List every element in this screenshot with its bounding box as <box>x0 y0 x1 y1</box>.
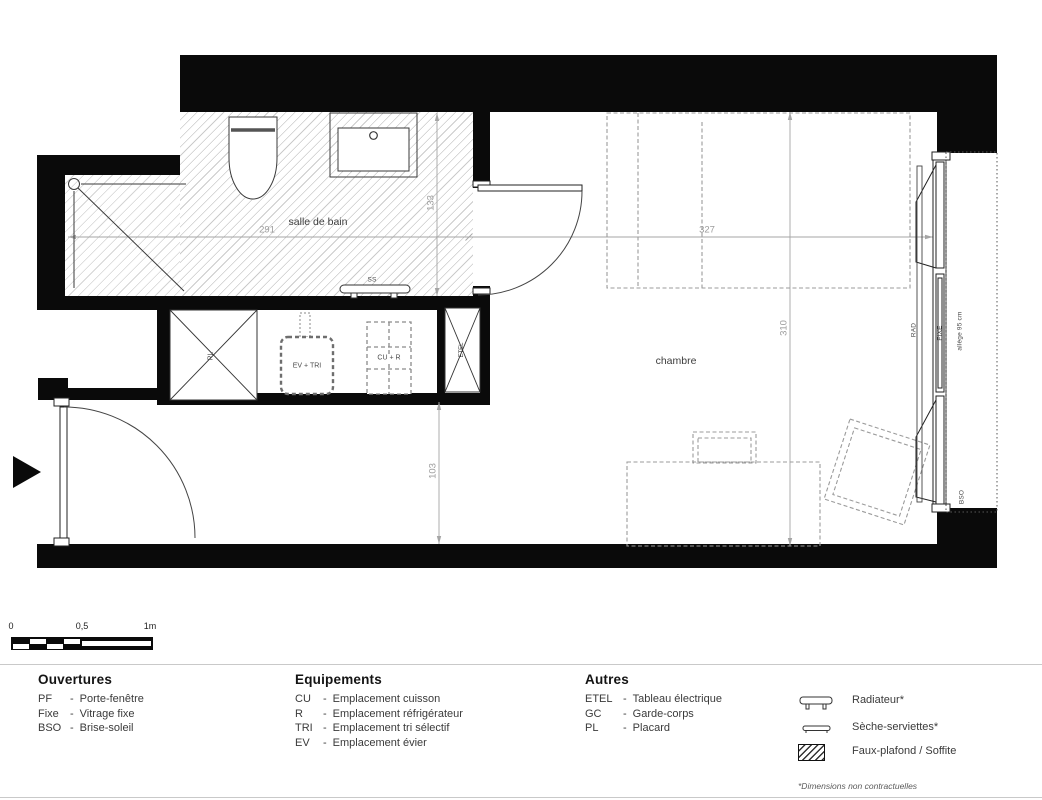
bed-outline <box>607 113 910 288</box>
legend-label: Vitrage fixe <box>80 709 135 721</box>
legend-separator: - <box>321 694 333 706</box>
bso-plan-label: BSO <box>959 490 966 504</box>
scale-one: 1m <box>144 621 157 631</box>
dim-hall-depth: 103 <box>428 463 439 479</box>
legend-item: EV - Emplacement évier <box>295 738 463 750</box>
legend-item: PL - Placard <box>585 723 722 735</box>
legend-item: TRI - Emplacement tri sélectif <box>295 723 463 735</box>
window-band <box>916 152 950 512</box>
dim-room-width: 327 <box>699 225 715 236</box>
legend-equipment-list: CU - Emplacement cuisson R - Emplacement… <box>295 694 463 753</box>
dim-bath-width: 291 <box>259 225 275 236</box>
legend-abbr: BSO <box>38 723 68 735</box>
legend-item: BSO - Brise-soleil <box>38 723 144 735</box>
fixed-glazing-label: FIXE <box>937 325 944 340</box>
legend-others-list: ETEL - Tableau électrique GC - Garde-cor… <box>585 694 722 738</box>
legend-abbr: CU <box>295 694 321 706</box>
bedroom-label: chambre <box>656 355 697 367</box>
sill-height-label: allège 95 cm <box>957 311 964 350</box>
legend-towel-label: Sèche-serviettes* <box>852 721 938 733</box>
shower <box>69 179 187 292</box>
legend-equipment-title: Equipements <box>295 672 382 687</box>
legend-item: ETEL - Tableau électrique <box>585 694 722 706</box>
legend-label: Placard <box>633 723 670 735</box>
scale-zero: 0 <box>8 621 13 631</box>
legend-item: CU - Emplacement cuisson <box>295 694 463 706</box>
legend-radiator-label: Radiateur* <box>852 694 904 706</box>
legend-label: Garde-corps <box>633 709 694 721</box>
electrical-label: ETEL <box>459 342 465 357</box>
cooking-zone-label: CU + R <box>375 355 402 362</box>
sink <box>330 113 417 177</box>
floor-plan-sheet: salle de bain chambre SS PL EV + TRI CU … <box>0 0 1042 800</box>
toilet <box>229 117 277 199</box>
legend-label: Brise-soleil <box>80 723 134 735</box>
legend-separator: - <box>621 709 633 721</box>
legend-soffit-label: Faux-plafond / Soffite <box>852 745 956 757</box>
dim-room-depth: 310 <box>779 320 790 336</box>
legend-label: Emplacement évier <box>333 738 427 750</box>
legend-item: R - Emplacement réfrigérateur <box>295 709 463 721</box>
legend-abbr: TRI <box>295 723 321 735</box>
legend-separator: - <box>321 738 333 750</box>
sink-zone-label: EV + TRI <box>291 363 323 370</box>
legend-separator: - <box>621 723 633 735</box>
towel-radiator <box>340 285 410 298</box>
bathroom-door <box>473 181 582 295</box>
radiator-plan-label: RAD <box>911 323 918 337</box>
legend-openings-list: PF - Porte-fenêtre Fixe - Vitrage fixe B… <box>38 694 144 738</box>
legend-separator: - <box>68 694 80 706</box>
legend-footnote: *Dimensions non contractuelles <box>798 781 917 791</box>
legend-label: Porte-fenêtre <box>80 694 144 706</box>
legend-divider <box>0 664 1042 665</box>
legend-separator: - <box>621 694 633 706</box>
legend-others-title: Autres <box>585 672 629 687</box>
legend-abbr: Fixe <box>38 709 68 721</box>
legend-abbr: ETEL <box>585 694 621 706</box>
legend-abbr: GC <box>585 709 621 721</box>
legend-abbr: PF <box>38 694 68 706</box>
desk-outline <box>627 432 820 546</box>
closet-label: PL <box>208 352 215 361</box>
legend-item: GC - Garde-corps <box>585 709 722 721</box>
towel-rail-label: SS <box>367 277 376 284</box>
legend-label: Emplacement cuisson <box>333 694 441 706</box>
legend-item: PF - Porte-fenêtre <box>38 694 144 706</box>
legend-abbr: EV <box>295 738 321 750</box>
legend-abbr: PL <box>585 723 621 735</box>
scale-half: 0,5 <box>76 621 89 631</box>
legend-label: Tableau électrique <box>633 694 722 706</box>
sink-recycling-zone <box>281 313 333 394</box>
legend-label: Emplacement réfrigérateur <box>333 709 463 721</box>
entry-door <box>54 398 195 546</box>
legend-label: Emplacement tri sélectif <box>333 723 450 735</box>
legend-separator: - <box>321 723 333 735</box>
legend-openings-title: Ouvertures <box>38 672 112 687</box>
legend-item: Fixe - Vitrage fixe <box>38 709 144 721</box>
sheet-bottom-line <box>0 797 1042 798</box>
bso-zone <box>946 152 997 512</box>
dim-bath-depth: 133 <box>426 195 437 211</box>
legend-separator: - <box>68 709 80 721</box>
armchair-outline <box>824 419 930 525</box>
legend-separator: - <box>321 709 333 721</box>
plan-linework <box>0 0 1042 800</box>
legend-abbr: R <box>295 709 321 721</box>
soffit-hatch-icon <box>798 744 825 761</box>
bathroom-label: salle de bain <box>289 216 348 228</box>
legend-separator: - <box>68 723 80 735</box>
